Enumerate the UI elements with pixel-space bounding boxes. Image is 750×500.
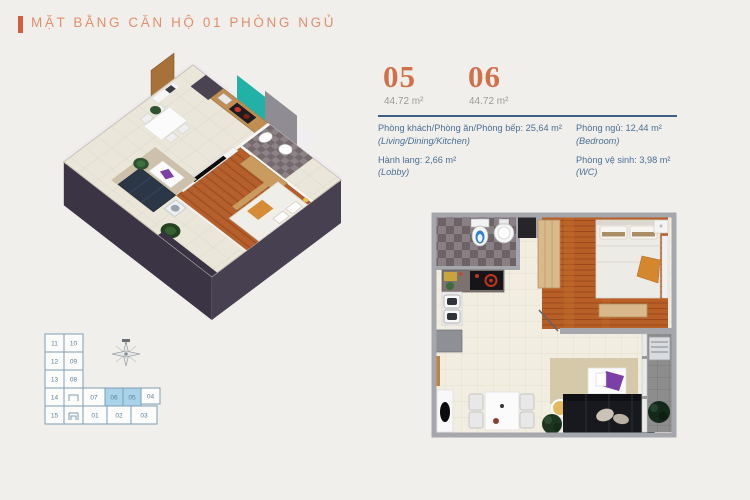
section-divider: [378, 115, 677, 117]
room-detail-sub: (Bedroom): [576, 135, 750, 147]
bathroom: [436, 217, 520, 270]
ac-unit: [649, 337, 670, 360]
room-detail-sub: (WC): [576, 166, 750, 178]
svg-text:02: 02: [115, 413, 123, 420]
room-detail-sub: (Living/Dining/Kitchen): [378, 135, 574, 147]
svg-text:15: 15: [51, 413, 59, 420]
dining-table: [485, 392, 519, 430]
console-table: [437, 390, 453, 432]
bed-bench: [599, 304, 647, 317]
bedroom: [538, 217, 672, 334]
svg-text:01: 01: [91, 413, 99, 420]
svg-text:04: 04: [147, 394, 155, 401]
svg-text:14: 14: [51, 395, 59, 402]
svg-text:11: 11: [51, 341, 58, 348]
unit-card-06: 06 44.72 m²: [468, 60, 508, 107]
svg-text:10: 10: [70, 341, 78, 348]
floor-plan-page: MẶT BẰNG CĂN HỘ 01 PHÒNG NGỦ: [0, 0, 750, 500]
svg-text:06: 06: [110, 395, 118, 402]
room-detail: Phòng khách/Phòng ăn/Phòng bếp: 25,64 m²…: [378, 122, 574, 147]
unit-card-05: 05 44.72 m²: [383, 60, 423, 107]
unit-number: 05: [383, 60, 423, 93]
room-detail-label: Phòng khách/Phòng ăn/Phòng bếp: 25,64 m²: [378, 122, 574, 135]
isometric-floor-plan: [28, 50, 348, 322]
room-detail-sub: (Lobby): [378, 166, 574, 178]
room-details-col2: Phòng ngủ: 12,44 m² (Bedroom) Phòng vệ s…: [576, 122, 750, 185]
svg-text:08: 08: [70, 377, 78, 384]
room-detail-label: Hành lang: 2,66 m²: [378, 154, 574, 167]
svg-text:13: 13: [51, 377, 59, 384]
room-details-col1: Phòng khách/Phòng ăn/Phòng bếp: 25,64 m²…: [378, 122, 574, 185]
room-detail: Phòng vệ sinh: 3,98 m² (WC): [576, 154, 750, 179]
wardrobe: [538, 220, 560, 288]
svg-text:03: 03: [140, 413, 148, 420]
unit-area: 44.72 m²: [468, 96, 508, 107]
svg-text:07: 07: [90, 395, 98, 402]
key-plan: 11 10 12 09 13 08 14 15 07 06 05 04 01 0…: [40, 330, 190, 435]
balcony-plant: [648, 401, 670, 423]
svg-text:05: 05: [128, 395, 136, 402]
room-detail: Phòng ngủ: 12,44 m² (Bedroom): [576, 122, 750, 147]
title-accent-bar: [18, 16, 23, 33]
2d-floor-plan: [430, 210, 678, 440]
svg-text:09: 09: [70, 359, 78, 366]
keyplan-cells: [45, 334, 160, 424]
svg-text:12: 12: [51, 359, 59, 366]
shaft: [518, 217, 536, 238]
page-title: MẶT BẰNG CĂN HỘ 01 PHÒNG NGỦ: [31, 15, 336, 30]
room-detail-label: Phòng ngủ: 12,44 m²: [576, 122, 750, 135]
unit-number: 06: [468, 60, 508, 93]
compass-rose-icon: [112, 339, 140, 366]
unit-area: 44.72 m²: [383, 96, 423, 107]
balcony: [642, 334, 672, 432]
room-detail-label: Phòng vệ sinh: 3,98 m²: [576, 154, 750, 167]
room-detail: Hành lang: 2,66 m² (Lobby): [378, 154, 574, 179]
